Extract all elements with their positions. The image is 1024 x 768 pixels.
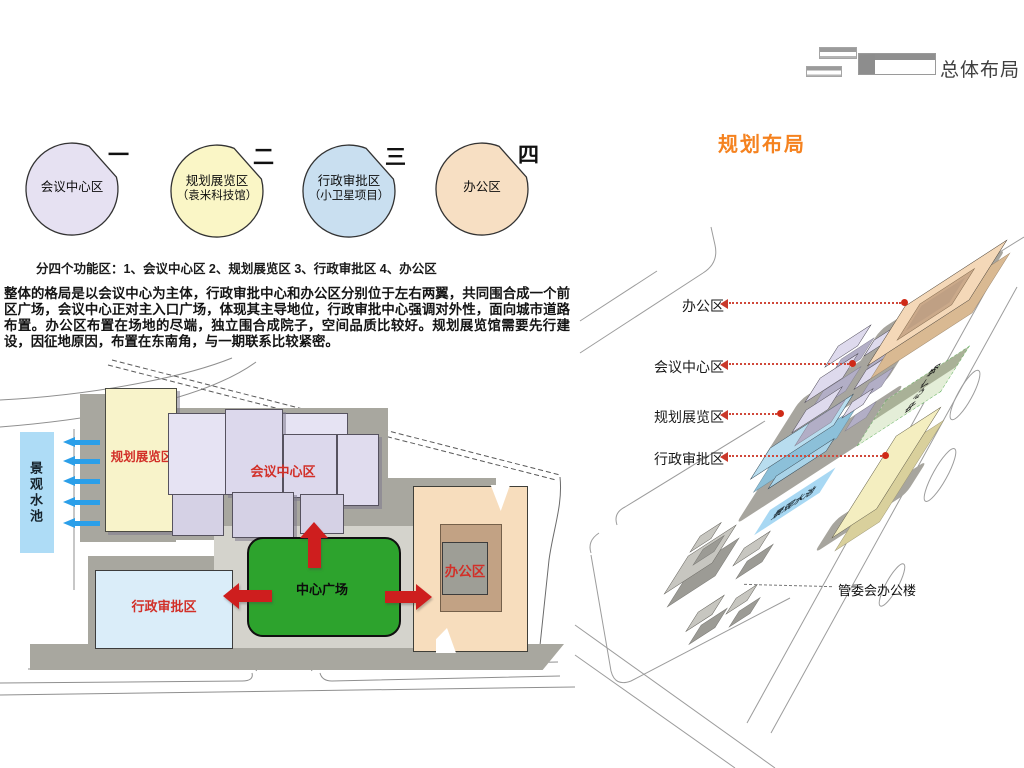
flow-arrow-left-icon [63, 497, 100, 507]
admin-label: 行政审批区 [114, 596, 214, 615]
axis-arrow-right-icon [385, 584, 432, 610]
callout-label-office: 办公区 [634, 296, 724, 316]
callout-line [729, 413, 777, 415]
pool-label: 景观水池 [26, 461, 45, 525]
callout-line [729, 302, 901, 304]
legend-circle-admin: 行政审批区 （小卫星项目） 三 [299, 139, 399, 239]
legend-circle-conference: 会议中心区 一 [22, 137, 122, 237]
circle-number: 三 [385, 141, 406, 171]
circle-number: 二 [253, 141, 274, 171]
legend-caption: 分四个功能区：1、会议中心区 2、规划展览区 3、行政审批区 4、办公区 [36, 258, 437, 277]
description-text: 整体的格局是以会议中心为主体，行政审批中心和办公区分别位于左右两翼，共同围合成一… [4, 286, 570, 350]
panel-title: 规划布局 [718, 128, 806, 157]
callout-label-admin: 行政审批区 [634, 449, 724, 469]
callout-dot [777, 410, 784, 417]
callout-line [729, 455, 882, 457]
callout-arrowhead-icon [720, 452, 728, 462]
callout-label-conference: 会议中心区 [634, 357, 724, 377]
flow-arrow-left-icon [63, 437, 100, 447]
page-title: 总体布局 [940, 55, 1020, 82]
callout-arrowhead-icon [720, 360, 728, 370]
logo-mark-small-2 [806, 66, 842, 77]
callout-dot [849, 360, 856, 367]
circle-number: 一 [108, 139, 129, 169]
circle-label: 规划展览区 [186, 174, 249, 189]
axis-arrow-left-icon [223, 583, 272, 609]
conference-label: 会议中心区 [233, 461, 333, 480]
callout-label-exhibition: 规划展览区 [634, 407, 724, 427]
logo-mark-small-1 [819, 47, 857, 59]
circle-label: 会议中心区 [41, 180, 104, 195]
circle-sublabel: （小卫星项目） [309, 189, 390, 204]
building-conference-block [232, 492, 294, 538]
flow-arrow-left-icon [63, 456, 100, 466]
callout-dot [901, 299, 908, 306]
legend-circle-office: 办公区 四 [432, 137, 532, 237]
slide: 总体布局 会议中心区 一 规划展览区 （袁米科技馆） 二 行政审批区 （小卫星项… [0, 0, 1024, 768]
building-conference-block [172, 494, 224, 536]
flow-arrow-left-icon [63, 518, 100, 528]
circle-sublabel: （袁米科技馆） [177, 189, 258, 204]
callout-arrowhead-icon [720, 410, 728, 420]
flow-arrow-left-icon [63, 476, 100, 486]
building-conference-block [225, 409, 283, 495]
legend-circle-exhibition: 规划展览区 （袁米科技馆） 二 [167, 139, 267, 239]
circle-label: 办公区 [463, 180, 501, 195]
axis-arrow-up-icon [300, 522, 328, 568]
committee-label: 管委会办公楼 [838, 580, 916, 599]
office-label: 办公区 [437, 560, 493, 580]
logo-wedge [859, 54, 875, 74]
callout-dot [882, 452, 889, 459]
exhibition-label: 规划展览区 [107, 446, 177, 465]
plaza-label: 中心广场 [272, 579, 372, 598]
callout-arrowhead-icon [720, 299, 728, 309]
logo-mark-large [858, 53, 936, 75]
circle-number: 四 [518, 139, 539, 169]
circle-label: 行政审批区 [318, 174, 381, 189]
callout-line [729, 363, 849, 365]
